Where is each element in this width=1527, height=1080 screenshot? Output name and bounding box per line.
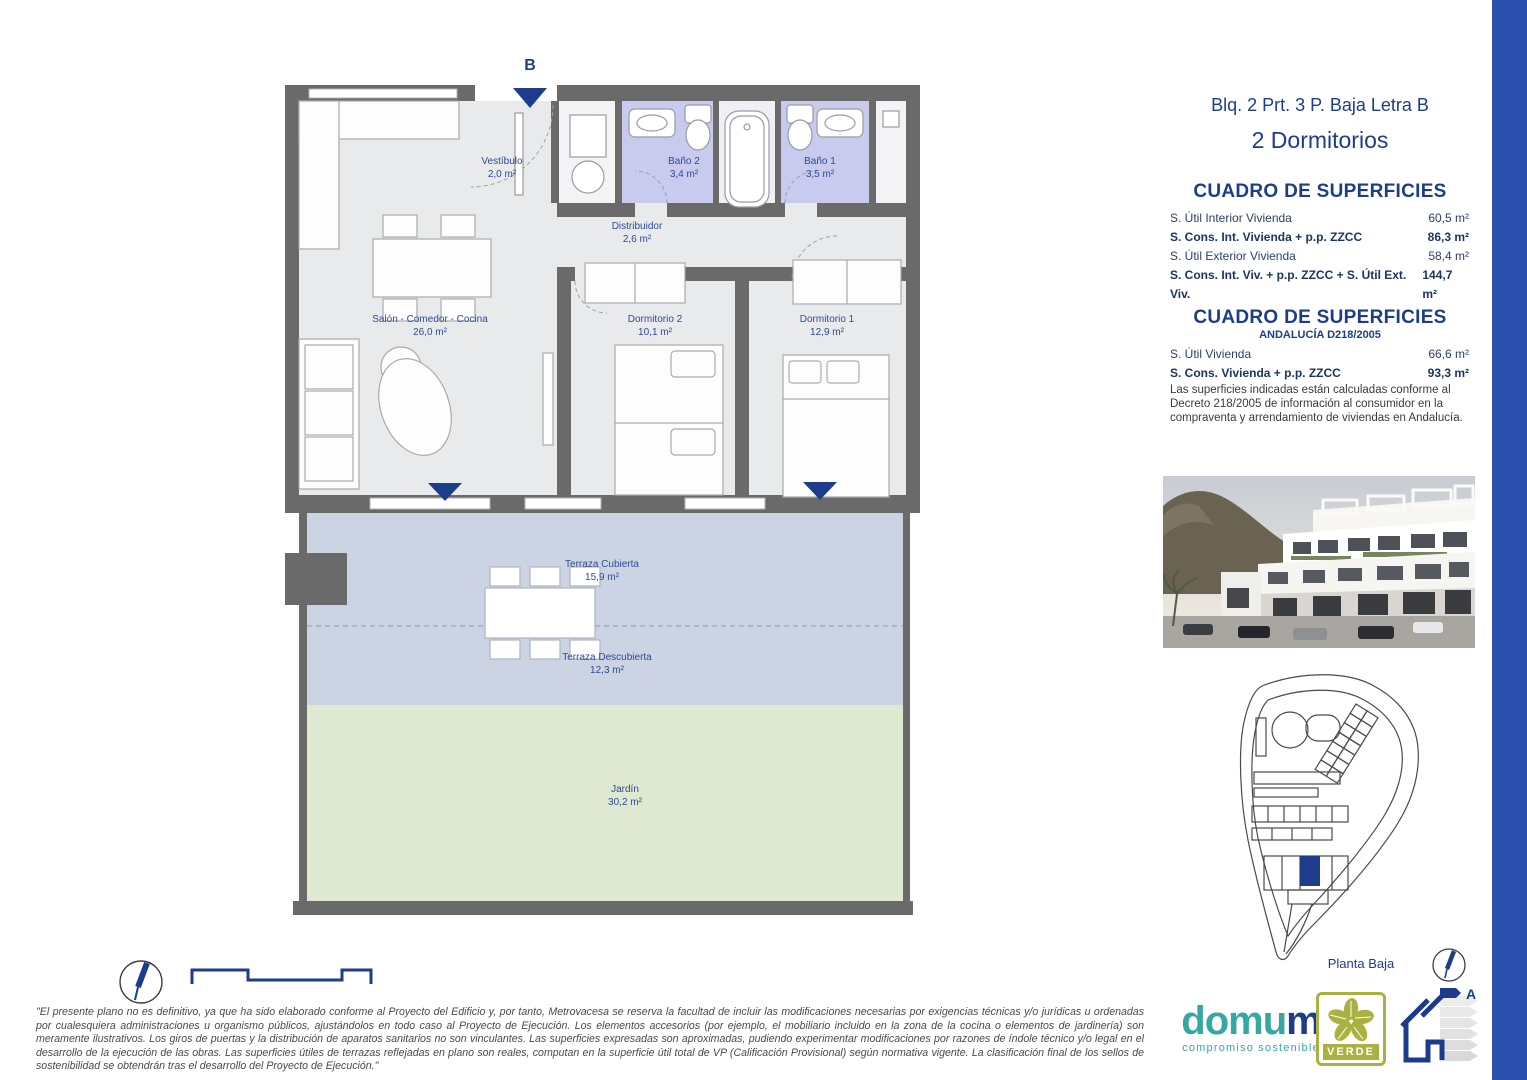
- row-label: S. Cons. Int. Viv. + p.p. ZZCC + S. Útil…: [1170, 266, 1422, 304]
- row-value: 93,3 m²: [1428, 364, 1469, 383]
- floor-level-label: Planta Baja: [1296, 956, 1426, 971]
- entrance-letter: B: [513, 57, 547, 75]
- room-label-jardin: Jardín 30,2 m²: [555, 783, 695, 809]
- plan-marks: [100, 940, 400, 1010]
- building-render-image: [1163, 476, 1475, 648]
- domum-logo: domum compromiso sostenible: [1173, 1000, 1329, 1054]
- site-road: [1252, 690, 1402, 936]
- row-value: 58,4 m²: [1428, 247, 1469, 266]
- room-label-terraza-cubierta: Terraza Cubierta 15,9 m²: [522, 558, 682, 584]
- room-name: Dormitorio 2: [595, 313, 715, 326]
- decree-note: Las superficies indicadas están calculad…: [1170, 383, 1470, 425]
- row-label: S. Cons. Vivienda + p.p. ZZCC: [1170, 364, 1341, 383]
- row-label: S. Útil Vivienda: [1170, 345, 1251, 364]
- floor-plan-sheet: B Vestíbulo 2,0 m² Baño 2 3,4 m² Baño 1 …: [0, 0, 1527, 1080]
- room-area: 2,0 m²: [457, 168, 547, 181]
- room-label-vestibulo: Vestíbulo 2,0 m²: [457, 155, 547, 181]
- domum-tagline: compromiso sostenible: [1173, 1042, 1329, 1054]
- floor-plan: B Vestíbulo 2,0 m² Baño 2 3,4 m² Baño 1 …: [285, 55, 920, 915]
- energy-bars: [1440, 996, 1478, 1061]
- room-area: 3,4 m²: [644, 168, 724, 181]
- highlighted-unit: [1300, 856, 1320, 886]
- room-name: Jardín: [555, 783, 695, 796]
- room-label-bano2: Baño 2 3,4 m²: [644, 155, 724, 181]
- row-value: 144,7 m²: [1422, 266, 1469, 304]
- room-area: 12,3 m²: [517, 664, 697, 677]
- verde-certification-badge: VERDE: [1316, 992, 1386, 1066]
- andalucia-table-subtitle: ANDALUCÍA D218/2005: [1150, 329, 1490, 341]
- row-label: S. Útil Interior Vivienda: [1170, 209, 1292, 228]
- andalucia-table-title: CUADRO DE SUPERFICIES: [1150, 307, 1490, 329]
- entrance-door-leaf: [515, 113, 523, 195]
- table-row: S. Cons. Int. Vivienda + p.p. ZZCC 86,3 …: [1170, 228, 1469, 247]
- andalucia-table: S. Útil Vivienda 66,6 m² S. Cons. Vivien…: [1170, 345, 1469, 383]
- row-label: S. Cons. Int. Vivienda + p.p. ZZCC: [1170, 228, 1362, 247]
- room-area: 10,1 m²: [595, 326, 715, 339]
- table-row: S. Cons. Vivienda + p.p. ZZCC 93,3 m²: [1170, 364, 1469, 383]
- right-accent-bar: [1492, 0, 1527, 1080]
- site-boundary: [1241, 675, 1419, 960]
- room-area: 2,6 m²: [587, 233, 687, 246]
- room-area: 3,5 m²: [780, 168, 860, 181]
- domum-wordmark: domum: [1173, 1000, 1329, 1042]
- bedrooms-title: 2 Dormitorios: [1150, 127, 1490, 154]
- verde-label: VERDE: [1323, 1044, 1379, 1060]
- room-name: Distribuidor: [587, 220, 687, 233]
- row-value: 86,3 m²: [1428, 228, 1469, 247]
- room-name: Dormitorio 1: [767, 313, 887, 326]
- room-label-terraza-descubierta: Terraza Descubierta 12,3 m²: [517, 651, 697, 677]
- room-label-dormitorio1: Dormitorio 1 12,9 m²: [767, 313, 887, 339]
- verde-leaf-icon: [1321, 997, 1381, 1047]
- row-value: 66,6 m²: [1428, 345, 1469, 364]
- room-name: Salón - Comedor - Cocina: [330, 313, 530, 326]
- row-value: 60,5 m²: [1428, 209, 1469, 228]
- room-label-distribuidor: Distribuidor 2,6 m²: [587, 220, 687, 246]
- room-name: Terraza Cubierta: [522, 558, 682, 571]
- room-name: Baño 2: [644, 155, 724, 168]
- plan-reference-title: Blq. 2 Prt. 3 P. Baja Letra B: [1150, 95, 1490, 116]
- room-name: Baño 1: [780, 155, 860, 168]
- room-area: 15,9 m²: [522, 571, 682, 584]
- surfaces-table: S. Útil Interior Vivienda 60,5 m² S. Con…: [1170, 209, 1469, 304]
- room-area: 26,0 m²: [330, 326, 530, 339]
- energy-rating-icon: A: [1392, 982, 1488, 1070]
- house-outline: [1402, 1000, 1442, 1060]
- room-label-dormitorio2: Dormitorio 2 10,1 m²: [595, 313, 715, 339]
- table-row: S. Útil Vivienda 66,6 m²: [1170, 345, 1469, 364]
- room-name: Vestíbulo: [457, 155, 547, 168]
- table-row: S. Cons. Int. Viv. + p.p. ZZCC + S. Útil…: [1170, 266, 1469, 304]
- logo-part-teal: domu: [1181, 999, 1286, 1043]
- room-label-bano1: Baño 1 3,5 m²: [780, 155, 860, 181]
- surfaces-table-title: CUADRO DE SUPERFICIES: [1150, 181, 1490, 203]
- room-label-salon: Salón - Comedor - Cocina 26,0 m²: [330, 313, 530, 339]
- energy-rating-letter: A: [1466, 986, 1476, 1002]
- room-area: 12,9 m²: [767, 326, 887, 339]
- table-row: S. Útil Interior Vivienda 60,5 m²: [1170, 209, 1469, 228]
- site-plan: [1228, 660, 1438, 978]
- row-label: S. Útil Exterior Vivienda: [1170, 247, 1296, 266]
- room-area: 30,2 m²: [555, 796, 695, 809]
- table-row: S. Útil Exterior Vivienda 58,4 m²: [1170, 247, 1469, 266]
- legal-disclaimer: "El presente plano no es definitivo, ya …: [36, 1006, 1144, 1074]
- room-name: Terraza Descubierta: [517, 651, 697, 664]
- section-marker: [192, 970, 371, 984]
